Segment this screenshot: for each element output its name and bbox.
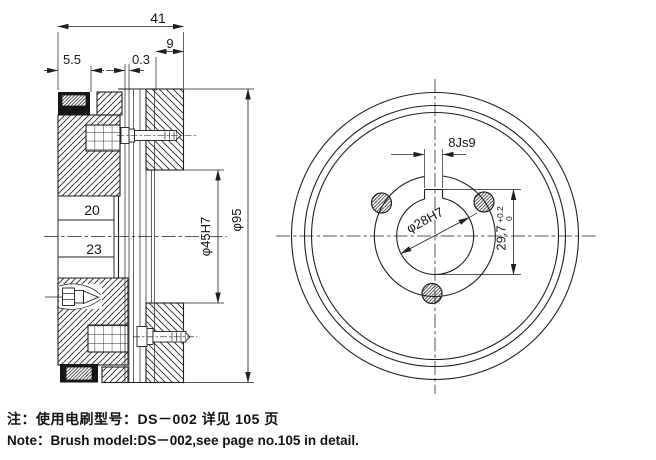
dim-label-keyway-height: 29.7	[494, 225, 509, 250]
dim-cap-width: 5.5	[44, 52, 104, 92]
dim-label-cap-width: 5.5	[63, 52, 81, 67]
screw-upper-right	[474, 192, 494, 212]
centerlines	[276, 79, 596, 394]
field-coil-top	[86, 125, 120, 151]
brush-holder-top	[58, 92, 90, 115]
dim-air-gap: 0.3	[106, 52, 150, 71]
note-chinese: 注：使用电刷型号：DS－002 详见 105 页	[7, 409, 279, 429]
adjust-screw-left	[45, 284, 102, 309]
dim-label-keyway-tol-lower: 0	[504, 216, 514, 221]
dim-label-key-width: 8Js9	[448, 135, 475, 150]
keyway	[425, 190, 443, 200]
brush-holder-bottom	[60, 364, 98, 383]
front-view: 8Js9 φ28H7 29.7 +0.2 0	[276, 79, 596, 394]
drawing-sheet: 41 9 0.3 5.5 20 23 φ45H7	[0, 0, 656, 460]
dim-label-total-width: 41	[150, 10, 166, 26]
dim-key-width: 8Js9	[391, 135, 476, 188]
dim-label-sleeve-lower: 23	[86, 241, 102, 257]
note-english: Note：Brush model:DS－002,see page no.105 …	[7, 429, 359, 449]
dim-label-bore-45: φ45H7	[198, 217, 213, 257]
section-view: 41 9 0.3 5.5 20 23 φ45H7	[44, 10, 254, 383]
dim-label-air-gap: 0.3	[132, 52, 150, 67]
dim-outer-95: φ95	[184, 89, 255, 383]
dim-label-outer-95: φ95	[229, 209, 244, 232]
screw-bottom	[422, 284, 442, 304]
dim-label-bore-28: φ28H7	[404, 204, 446, 236]
dim-label-hub-depth: 9	[166, 36, 173, 51]
dim-total-width: 41	[58, 10, 184, 90]
technical-drawing: 41 9 0.3 5.5 20 23 φ45H7	[0, 0, 656, 460]
field-coil-bottom	[88, 325, 128, 352]
screw-upper-left	[372, 193, 392, 213]
dim-hub-depth: 9	[156, 36, 184, 91]
dim-label-sleeve-upper: 20	[84, 202, 100, 218]
